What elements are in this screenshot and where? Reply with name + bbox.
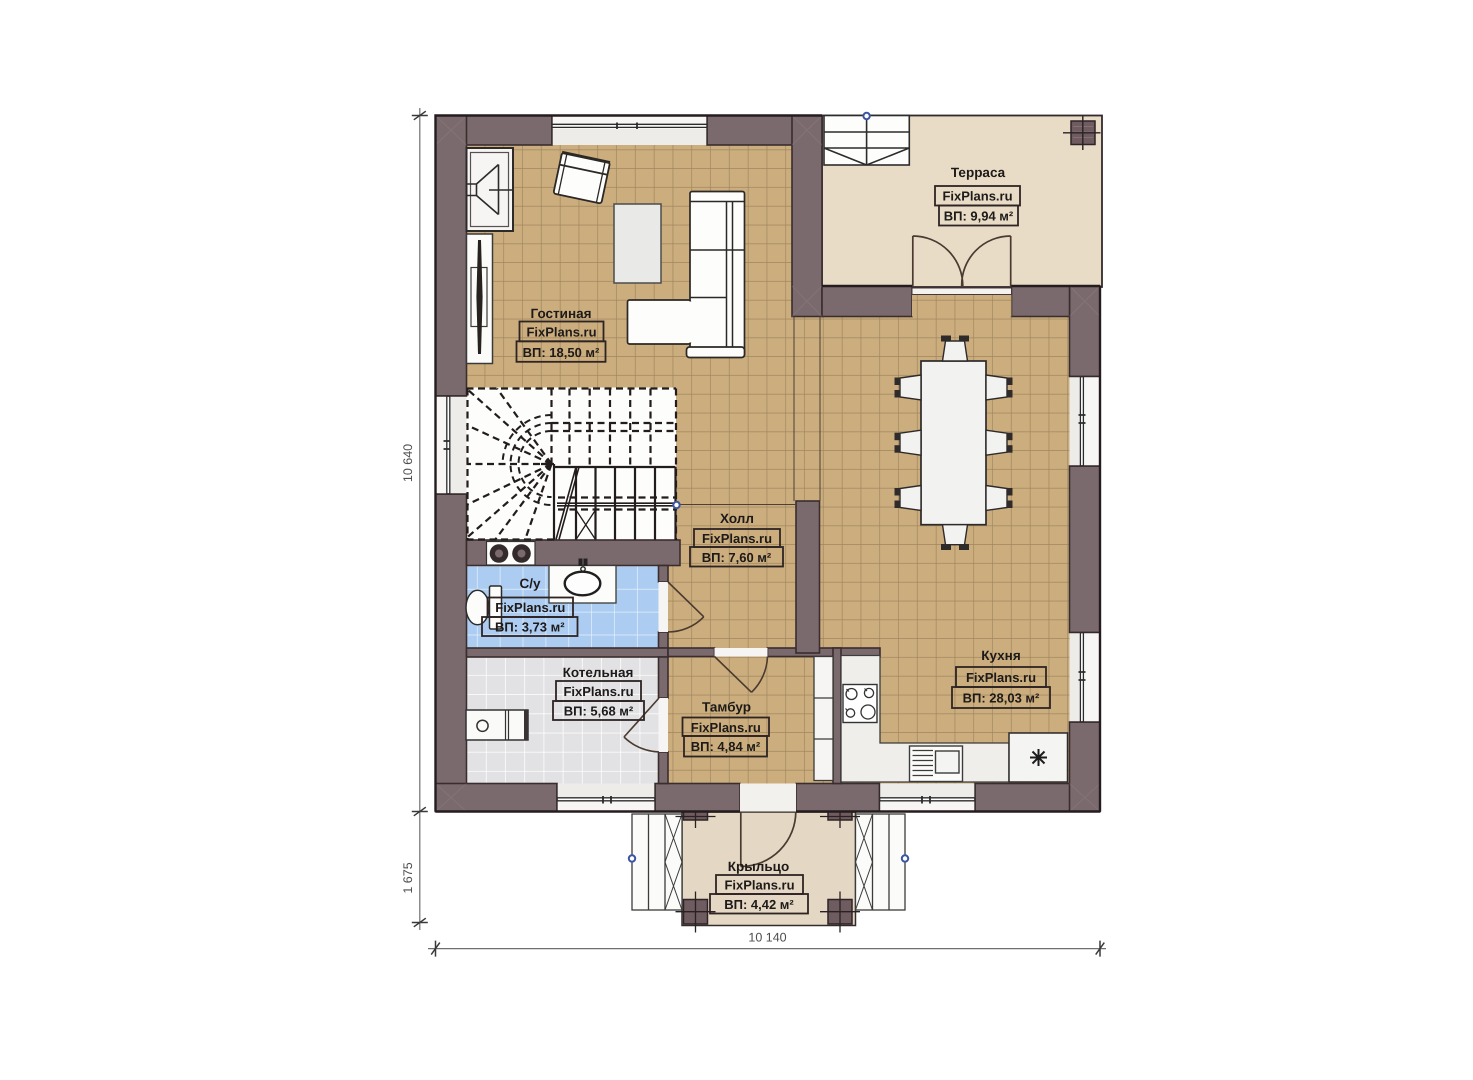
svg-text:FixPlans.ru: FixPlans.ru: [563, 684, 633, 699]
svg-text:1 675: 1 675: [401, 862, 415, 893]
svg-text:Котельная: Котельная: [563, 665, 634, 680]
svg-text:FixPlans.ru: FixPlans.ru: [724, 878, 794, 893]
svg-text:ВП: 9,94 м²: ВП: 9,94 м²: [944, 209, 1014, 224]
svg-text:Гостиная: Гостиная: [530, 306, 591, 321]
svg-text:ВП: 3,73 м²: ВП: 3,73 м²: [495, 620, 565, 635]
svg-text:ВП: 28,03 м²: ВП: 28,03 м²: [963, 691, 1040, 706]
svg-text:FixPlans.ru: FixPlans.ru: [702, 531, 772, 546]
svg-text:FixPlans.ru: FixPlans.ru: [966, 670, 1036, 685]
svg-text:FixPlans.ru: FixPlans.ru: [495, 600, 565, 615]
svg-text:Крыльцо: Крыльцо: [728, 859, 789, 874]
svg-text:С/у: С/у: [519, 576, 541, 591]
svg-text:Холл: Холл: [720, 511, 754, 526]
svg-text:10 140: 10 140: [748, 931, 786, 945]
svg-text:ВП: 18,50 м²: ВП: 18,50 м²: [523, 345, 600, 360]
svg-text:ВП: 5,68 м²: ВП: 5,68 м²: [564, 704, 634, 719]
svg-text:FixPlans.ru: FixPlans.ru: [691, 720, 761, 735]
svg-text:ВП: 4,84 м²: ВП: 4,84 м²: [691, 739, 761, 754]
svg-text:FixPlans.ru: FixPlans.ru: [526, 325, 596, 340]
svg-text:ВП: 4,42 м²: ВП: 4,42 м²: [724, 897, 794, 912]
svg-text:10 640: 10 640: [401, 444, 415, 482]
svg-text:Тамбур: Тамбур: [702, 700, 751, 715]
svg-text:Кухня: Кухня: [981, 648, 1020, 663]
svg-text:Терраса: Терраса: [951, 165, 1006, 180]
svg-text:FixPlans.ru: FixPlans.ru: [942, 189, 1012, 204]
svg-text:ВП: 7,60 м²: ВП: 7,60 м²: [702, 550, 772, 565]
